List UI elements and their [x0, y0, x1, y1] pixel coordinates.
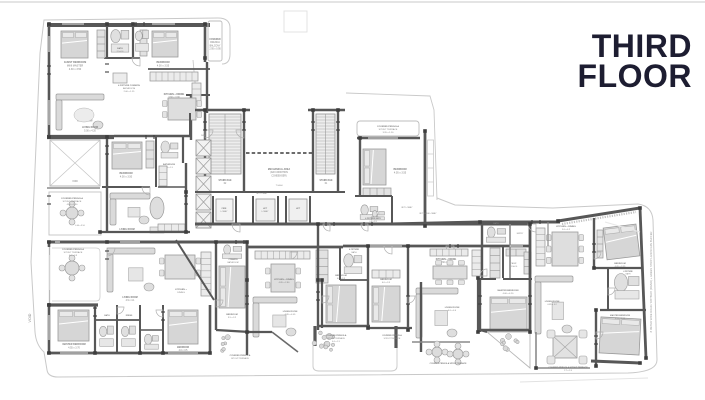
svg-text:4.00 x 3.50: 4.00 x 3.50 [120, 175, 133, 178]
svg-text:5.6 x 4.2: 5.6 x 4.2 [562, 229, 571, 231]
svg-text:BEDROOM: BEDROOM [177, 347, 189, 349]
svg-text:LIVING ROOM: LIVING ROOM [283, 311, 298, 313]
svg-text:LIVING ROOM: LIVING ROOM [445, 307, 460, 309]
svg-text:BATHROOM: BATHROOM [123, 87, 136, 90]
svg-text:ENTRY: ENTRY [517, 233, 524, 235]
svg-text:MECHANICAL AREA: MECHANICAL AREA [268, 168, 291, 171]
svg-text:SITOUT TERRACE: SITOUT TERRACE [379, 128, 398, 131]
svg-text:8 METER WIDE ROAD / PATHWAY (P: 8 METER WIDE ROAD / PATHWAY (PAVED) + GR… [649, 232, 653, 333]
svg-text:BEDROOM: BEDROOM [226, 314, 237, 316]
svg-text:2.95 x 0.95: 2.95 x 0.95 [209, 49, 221, 51]
svg-text:4.05 x 3.55: 4.05 x 3.55 [394, 171, 407, 174]
svg-text:VOID: VOID [72, 181, 78, 183]
svg-text:COVERED PERGOLA: COVERED PERGOLA [326, 334, 347, 337]
svg-text:COVERED PERGOLA: COVERED PERGOLA [62, 248, 84, 251]
svg-text:4.30 x 3.50: 4.30 x 3.50 [69, 68, 82, 71]
svg-text:COVERED: COVERED [209, 39, 221, 41]
svg-text:4.55 x 4.05: 4.55 x 4.05 [615, 318, 626, 320]
svg-text:LOBBY: LOBBY [221, 211, 228, 213]
svg-text:KITCHEN +: KITCHEN + [175, 289, 187, 291]
svg-text:LIFT: LIFT [263, 208, 268, 210]
svg-text:8FT WIDE LOBBY: 8FT WIDE LOBBY [420, 213, 438, 215]
svg-text:STAIRCASE: STAIRCASE [219, 179, 232, 182]
svg-text:FRENCH: FRENCH [210, 42, 220, 44]
svg-text:LIVING ROOM: LIVING ROOM [119, 229, 134, 231]
svg-text:COMMON: COMMON [229, 259, 239, 261]
svg-text:SITOUT TERRACE: SITOUT TERRACE [384, 337, 401, 340]
svg-text:FIRE: FIRE [222, 208, 227, 210]
svg-text:02: 02 [224, 183, 227, 185]
svg-text:01: 01 [325, 183, 328, 185]
svg-text:KITCHEN + DINING: KITCHEN + DINING [556, 226, 576, 228]
svg-text:D/W: D/W [201, 135, 205, 137]
svg-text:BALCONY: BALCONY [210, 44, 221, 47]
svg-text:4.00 x 3.50: 4.00 x 3.50 [75, 225, 85, 227]
svg-text:4.55 x 3.70: 4.55 x 3.70 [68, 346, 80, 349]
svg-text:3.9 x 3.2: 3.9 x 3.2 [228, 317, 237, 319]
svg-text:MASTER BEDROOM: MASTER BEDROOM [610, 314, 630, 317]
svg-text:8FT LOBBY: 8FT LOBBY [257, 193, 269, 195]
svg-text:2.6 x 1.9: 2.6 x 1.9 [369, 221, 376, 223]
svg-text:4.85 x 2.80: 4.85 x 2.80 [279, 282, 290, 284]
svg-text:4.0 x 1.5: 4.0 x 1.5 [332, 341, 341, 343]
svg-text:SITOUT TERRACE: SITOUT TERRACE [64, 251, 83, 254]
svg-text:BEDROOM: BEDROOM [380, 279, 391, 281]
svg-text:LIFT: LIFT [296, 208, 301, 210]
svg-text:BATH: BATH [626, 273, 631, 276]
svg-text:SITOUT TERRACE: SITOUT TERRACE [327, 337, 345, 340]
svg-text:DRESS: DRESS [126, 315, 133, 317]
svg-text:4 FIXTURE: 4 FIXTURE [623, 270, 633, 273]
svg-text:COVERED PERGOLA SITOUT TERRACE: COVERED PERGOLA SITOUT TERRACE [548, 366, 588, 369]
svg-text:SITOUT TERRACE: SITOUT TERRACE [231, 357, 249, 360]
svg-text:LIVING ROOM: LIVING ROOM [545, 301, 560, 303]
svg-text:COVERED PERGOLA: COVERED PERGOLA [61, 197, 83, 200]
svg-text:4.0 x 3.5: 4.0 x 3.5 [382, 282, 391, 284]
svg-text:W.I.C: W.I.C [512, 263, 517, 265]
svg-text:(AIR CONDITION: (AIR CONDITION [270, 171, 288, 174]
svg-text:COVERED PERGOLA: COVERED PERGOLA [377, 125, 399, 128]
svg-text:5.00 x 4.20: 5.00 x 4.20 [84, 129, 96, 132]
svg-text:2.1x2.6: 2.1x2.6 [117, 51, 125, 53]
svg-text:BATHROOM: BATHROOM [163, 163, 175, 166]
svg-text:BATH: BATH [117, 47, 123, 50]
svg-text:4.00 x 3.55: 4.00 x 3.55 [157, 64, 170, 67]
svg-text:2.7 x 2.4: 2.7 x 2.4 [564, 370, 573, 372]
svg-text:KITCHEN + DINING: KITCHEN + DINING [164, 94, 185, 96]
svg-text:COVERED PERGOLA: COVERED PERGOLA [382, 334, 402, 337]
svg-text:BATHROOM: BATHROOM [228, 261, 239, 264]
svg-text:4.00 x 3.50: 4.00 x 3.50 [67, 204, 78, 206]
svg-text:BATH: BATH [352, 251, 358, 254]
svg-text:4.85 x 4.05: 4.85 x 4.05 [285, 314, 296, 316]
svg-text:1.9x2.6: 1.9x2.6 [511, 266, 517, 268]
svg-text:COVERED PERGOLA SITOUT TERRACE: COVERED PERGOLA SITOUT TERRACE [430, 362, 468, 365]
svg-text:LIVING ROOM: LIVING ROOM [122, 297, 137, 299]
svg-text:STAIRCASE: STAIRCASE [320, 179, 333, 182]
svg-text:CONDENSER): CONDENSER) [271, 175, 286, 177]
svg-text:VOID: VOID [28, 313, 32, 322]
svg-text:4 FIXTURE COMMON: 4 FIXTURE COMMON [118, 84, 140, 87]
svg-text:BEDROOM: BEDROOM [335, 275, 346, 277]
svg-text:8FT LOBBY: 8FT LOBBY [402, 207, 414, 209]
svg-text:2.60 x 1.55: 2.60 x 1.55 [124, 91, 135, 93]
svg-text:BATH: BATH [104, 314, 110, 317]
svg-text:4.60 x 4.20: 4.60 x 4.20 [503, 293, 514, 295]
svg-text:3.95 x 1.50: 3.95 x 1.50 [383, 132, 394, 134]
svg-text:7' HIGH: 7' HIGH [276, 185, 283, 187]
svg-text:BEDROOM: BEDROOM [614, 263, 625, 265]
svg-text:SITOUT TERRACE: SITOUT TERRACE [63, 200, 82, 203]
svg-text:4.85 x 4.2: 4.85 x 4.2 [547, 304, 557, 306]
svg-text:4.6 x 4.0: 4.6 x 4.0 [448, 310, 457, 312]
svg-text:KITCHEN + DINING: KITCHEN + DINING [274, 279, 294, 281]
svg-text:DINING: DINING [177, 292, 185, 294]
svg-text:4.9 x 4.1: 4.9 x 4.1 [126, 300, 135, 302]
svg-text:4 FIXTURE BATH: 4 FIXTURE BATH [365, 217, 381, 220]
svg-text:4.0 x 3.3: 4.0 x 3.3 [69, 255, 78, 257]
svg-text:BATH: BATH [493, 222, 499, 225]
svg-text:4 FIXTURE: 4 FIXTURE [349, 248, 360, 251]
svg-text:MASTER BEDROOM: MASTER BEDROOM [498, 289, 519, 292]
svg-text:LOBBY: LOBBY [262, 211, 269, 213]
